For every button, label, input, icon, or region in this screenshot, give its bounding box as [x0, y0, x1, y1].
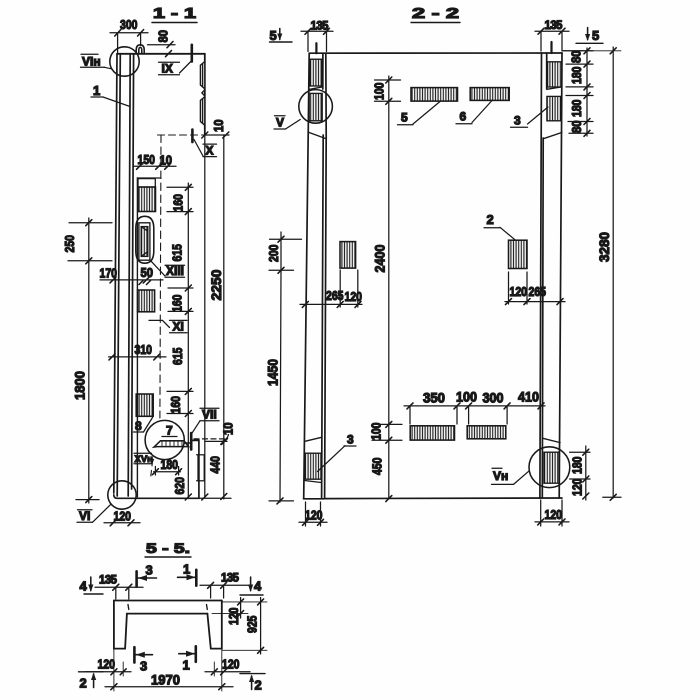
svg-text:Vн: Vн	[493, 469, 508, 483]
svg-text:615: 615	[170, 348, 185, 366]
svg-text:135: 135	[99, 573, 117, 587]
svg-text:160: 160	[172, 194, 186, 212]
svg-text:310: 310	[135, 343, 153, 357]
svg-text:2: 2	[255, 678, 262, 693]
svg-text:620: 620	[172, 477, 187, 495]
svg-text:7: 7	[166, 424, 173, 438]
svg-text:135: 135	[311, 19, 329, 33]
svg-text:2: 2	[487, 212, 494, 227]
svg-text:450: 450	[370, 458, 385, 476]
svg-text:120: 120	[510, 285, 528, 299]
svg-text:160: 160	[169, 396, 183, 414]
svg-text:4: 4	[254, 579, 262, 594]
svg-text:100: 100	[373, 83, 387, 101]
svg-text:50: 50	[141, 266, 154, 280]
svg-text:410: 410	[518, 390, 539, 405]
svg-text:6: 6	[460, 110, 467, 124]
svg-text:180: 180	[570, 67, 584, 85]
svg-text:440: 440	[208, 456, 223, 474]
svg-text:8: 8	[135, 419, 142, 433]
svg-text:3: 3	[514, 114, 521, 128]
svg-text:120: 120	[545, 508, 563, 522]
svg-text:3: 3	[146, 563, 153, 578]
svg-text:350: 350	[423, 391, 445, 406]
svg-text:VIн: VIн	[82, 55, 101, 69]
svg-text:X: X	[206, 144, 214, 158]
svg-text:100: 100	[456, 390, 477, 405]
svg-text:10: 10	[212, 120, 226, 133]
svg-text:180: 180	[161, 458, 179, 472]
svg-text:V: V	[276, 116, 284, 130]
svg-text:135: 135	[221, 571, 239, 585]
svg-text:100: 100	[370, 423, 384, 441]
svg-text:120: 120	[114, 510, 132, 524]
svg-text:2250: 2250	[208, 269, 224, 300]
svg-text:80: 80	[157, 30, 171, 43]
svg-text:XIII: XIII	[166, 264, 184, 278]
svg-text:3280: 3280	[596, 232, 612, 262]
svg-text:265: 265	[326, 289, 344, 303]
svg-text:1800: 1800	[72, 371, 88, 400]
svg-text:1: 1	[183, 562, 190, 577]
svg-text:5 - 5.: 5 - 5.	[146, 541, 190, 556]
svg-text:3: 3	[347, 433, 354, 447]
svg-text:5: 5	[401, 111, 408, 125]
svg-text:2 - 2: 2 - 2	[412, 6, 459, 22]
svg-text:300: 300	[120, 17, 138, 32]
svg-text:1: 1	[183, 658, 190, 673]
svg-text:2400: 2400	[372, 244, 388, 272]
svg-text:1970: 1970	[151, 673, 180, 688]
svg-text:80: 80	[570, 51, 584, 64]
svg-text:160: 160	[171, 295, 185, 313]
svg-text:120: 120	[222, 658, 240, 672]
svg-text:5: 5	[592, 28, 599, 43]
svg-text:1450: 1450	[265, 359, 281, 386]
svg-text:925: 925	[246, 616, 260, 634]
svg-text:2: 2	[80, 676, 87, 691]
svg-text:4: 4	[80, 579, 88, 594]
svg-text:300: 300	[483, 391, 504, 406]
svg-text:120: 120	[571, 479, 585, 497]
svg-text:180: 180	[571, 457, 585, 475]
svg-text:IX: IX	[162, 62, 173, 76]
svg-text:135: 135	[545, 18, 563, 32]
svg-text:615: 615	[170, 244, 185, 262]
svg-text:250: 250	[62, 235, 77, 253]
svg-text:10: 10	[160, 154, 173, 168]
svg-text:120: 120	[227, 608, 241, 626]
svg-text:200: 200	[267, 245, 281, 263]
svg-text:1: 1	[93, 83, 100, 98]
svg-text:5: 5	[270, 28, 277, 43]
svg-text:1 - 1: 1 - 1	[153, 6, 196, 22]
svg-text:XI: XI	[173, 320, 184, 334]
svg-text:3: 3	[140, 659, 147, 674]
svg-text:VI: VI	[79, 509, 90, 523]
svg-text:180: 180	[570, 100, 584, 118]
svg-text:120: 120	[98, 658, 116, 672]
svg-text:120: 120	[345, 290, 363, 304]
svg-text:80: 80	[570, 121, 584, 134]
